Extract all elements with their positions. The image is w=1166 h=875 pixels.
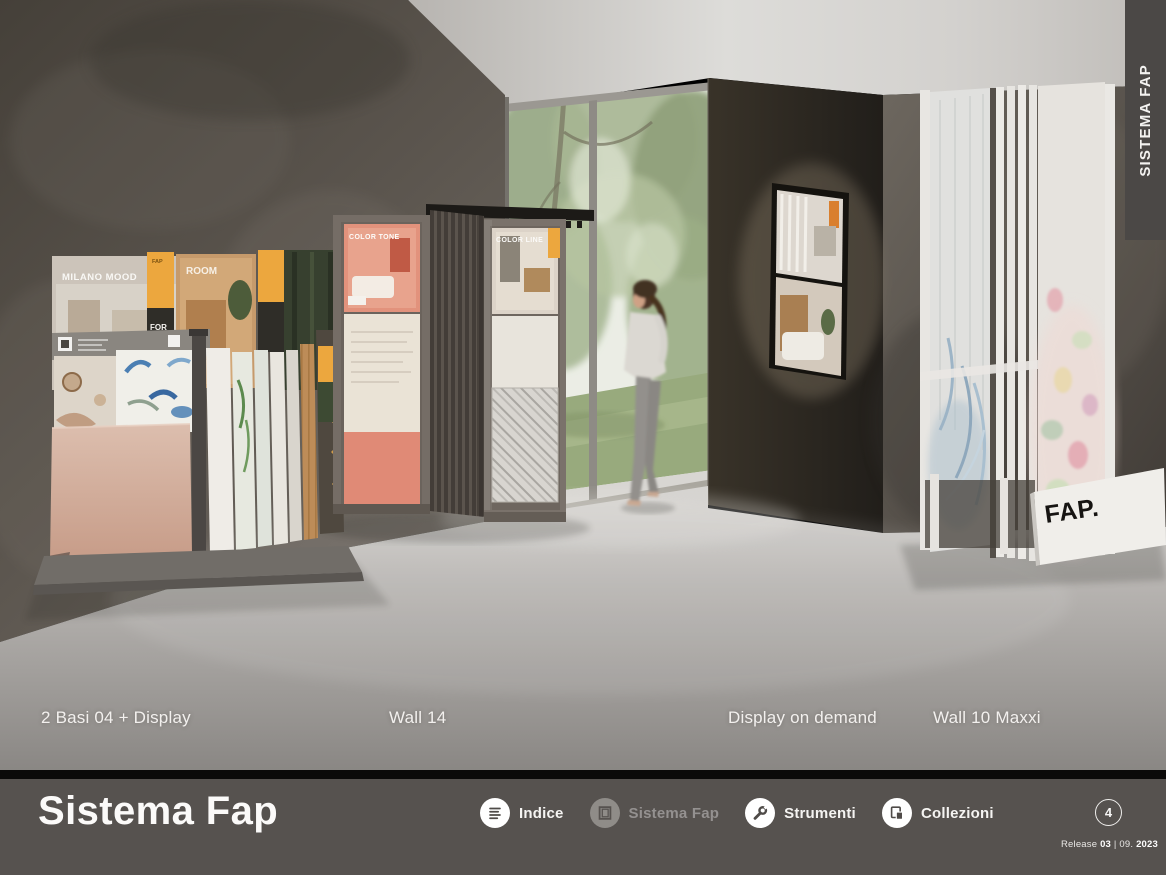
wrench-icon [745,798,775,828]
tower-display-wall14: COLOR TONE COLOR LINE [333,204,594,522]
page-title: Sistema Fap [38,788,278,834]
poster-title-color-line: COLOR LINE [496,237,543,244]
photo-footer-divider [0,770,1166,779]
section-tab-sistema-fap[interactable]: SISTEMA FAP [1125,0,1166,240]
catalog-nav: Indice Sistema Fap [480,798,994,828]
caption-wall-14: Wall 14 [389,708,446,728]
nav-label-strumenti: Strumenti [784,805,856,822]
release-separator: | [1114,839,1117,850]
nav-item-collezioni[interactable]: Collezioni [882,798,994,828]
display-frame-icon [590,798,620,828]
caption-wall-10-maxxi: Wall 10 Maxxi [933,708,1041,728]
nav-item-indice[interactable]: Indice [480,798,564,828]
release-label: Release [1061,839,1097,850]
caption-display-on-demand: Display on demand [728,708,877,728]
ondemand-wall-frame [740,167,884,397]
release-info: Release 03 | 09. 2023 [1061,839,1158,850]
page-number-badge: 4 [1095,799,1122,826]
release-month: 09. [1119,839,1133,850]
catalog-page: MILANO MOOD FAP FOR TILES ROOM [0,0,1166,875]
poster-title-room: ROOM [186,266,217,277]
section-tab-label: SISTEMA FAP [1137,64,1154,177]
nav-label-collezioni: Collezioni [921,805,994,822]
index-list-icon [480,798,510,828]
nav-item-sistema-fap[interactable]: Sistema Fap [590,798,720,828]
poster-title-color-tone: COLOR TONE [349,234,400,241]
nav-label-sistema-fap: Sistema Fap [629,805,720,822]
release-version: 03 [1100,839,1111,850]
window-mullion [589,100,597,513]
nav-label-indice: Indice [519,805,564,822]
bottom-navigation-bar: Sistema Fap Indice [0,779,1166,875]
showroom-photo: MILANO MOOD FAP FOR TILES ROOM [0,0,1166,770]
page-number: 4 [1105,805,1112,820]
collections-copy-icon [882,798,912,828]
release-year: 2023 [1136,839,1158,850]
poster-title-milano-mood: MILANO MOOD [62,272,137,283]
nav-item-strumenti[interactable]: Strumenti [745,798,856,828]
caption-2-basi-04-display: 2 Basi 04 + Display [41,708,191,728]
fap-tag-label: FAP [152,259,163,265]
